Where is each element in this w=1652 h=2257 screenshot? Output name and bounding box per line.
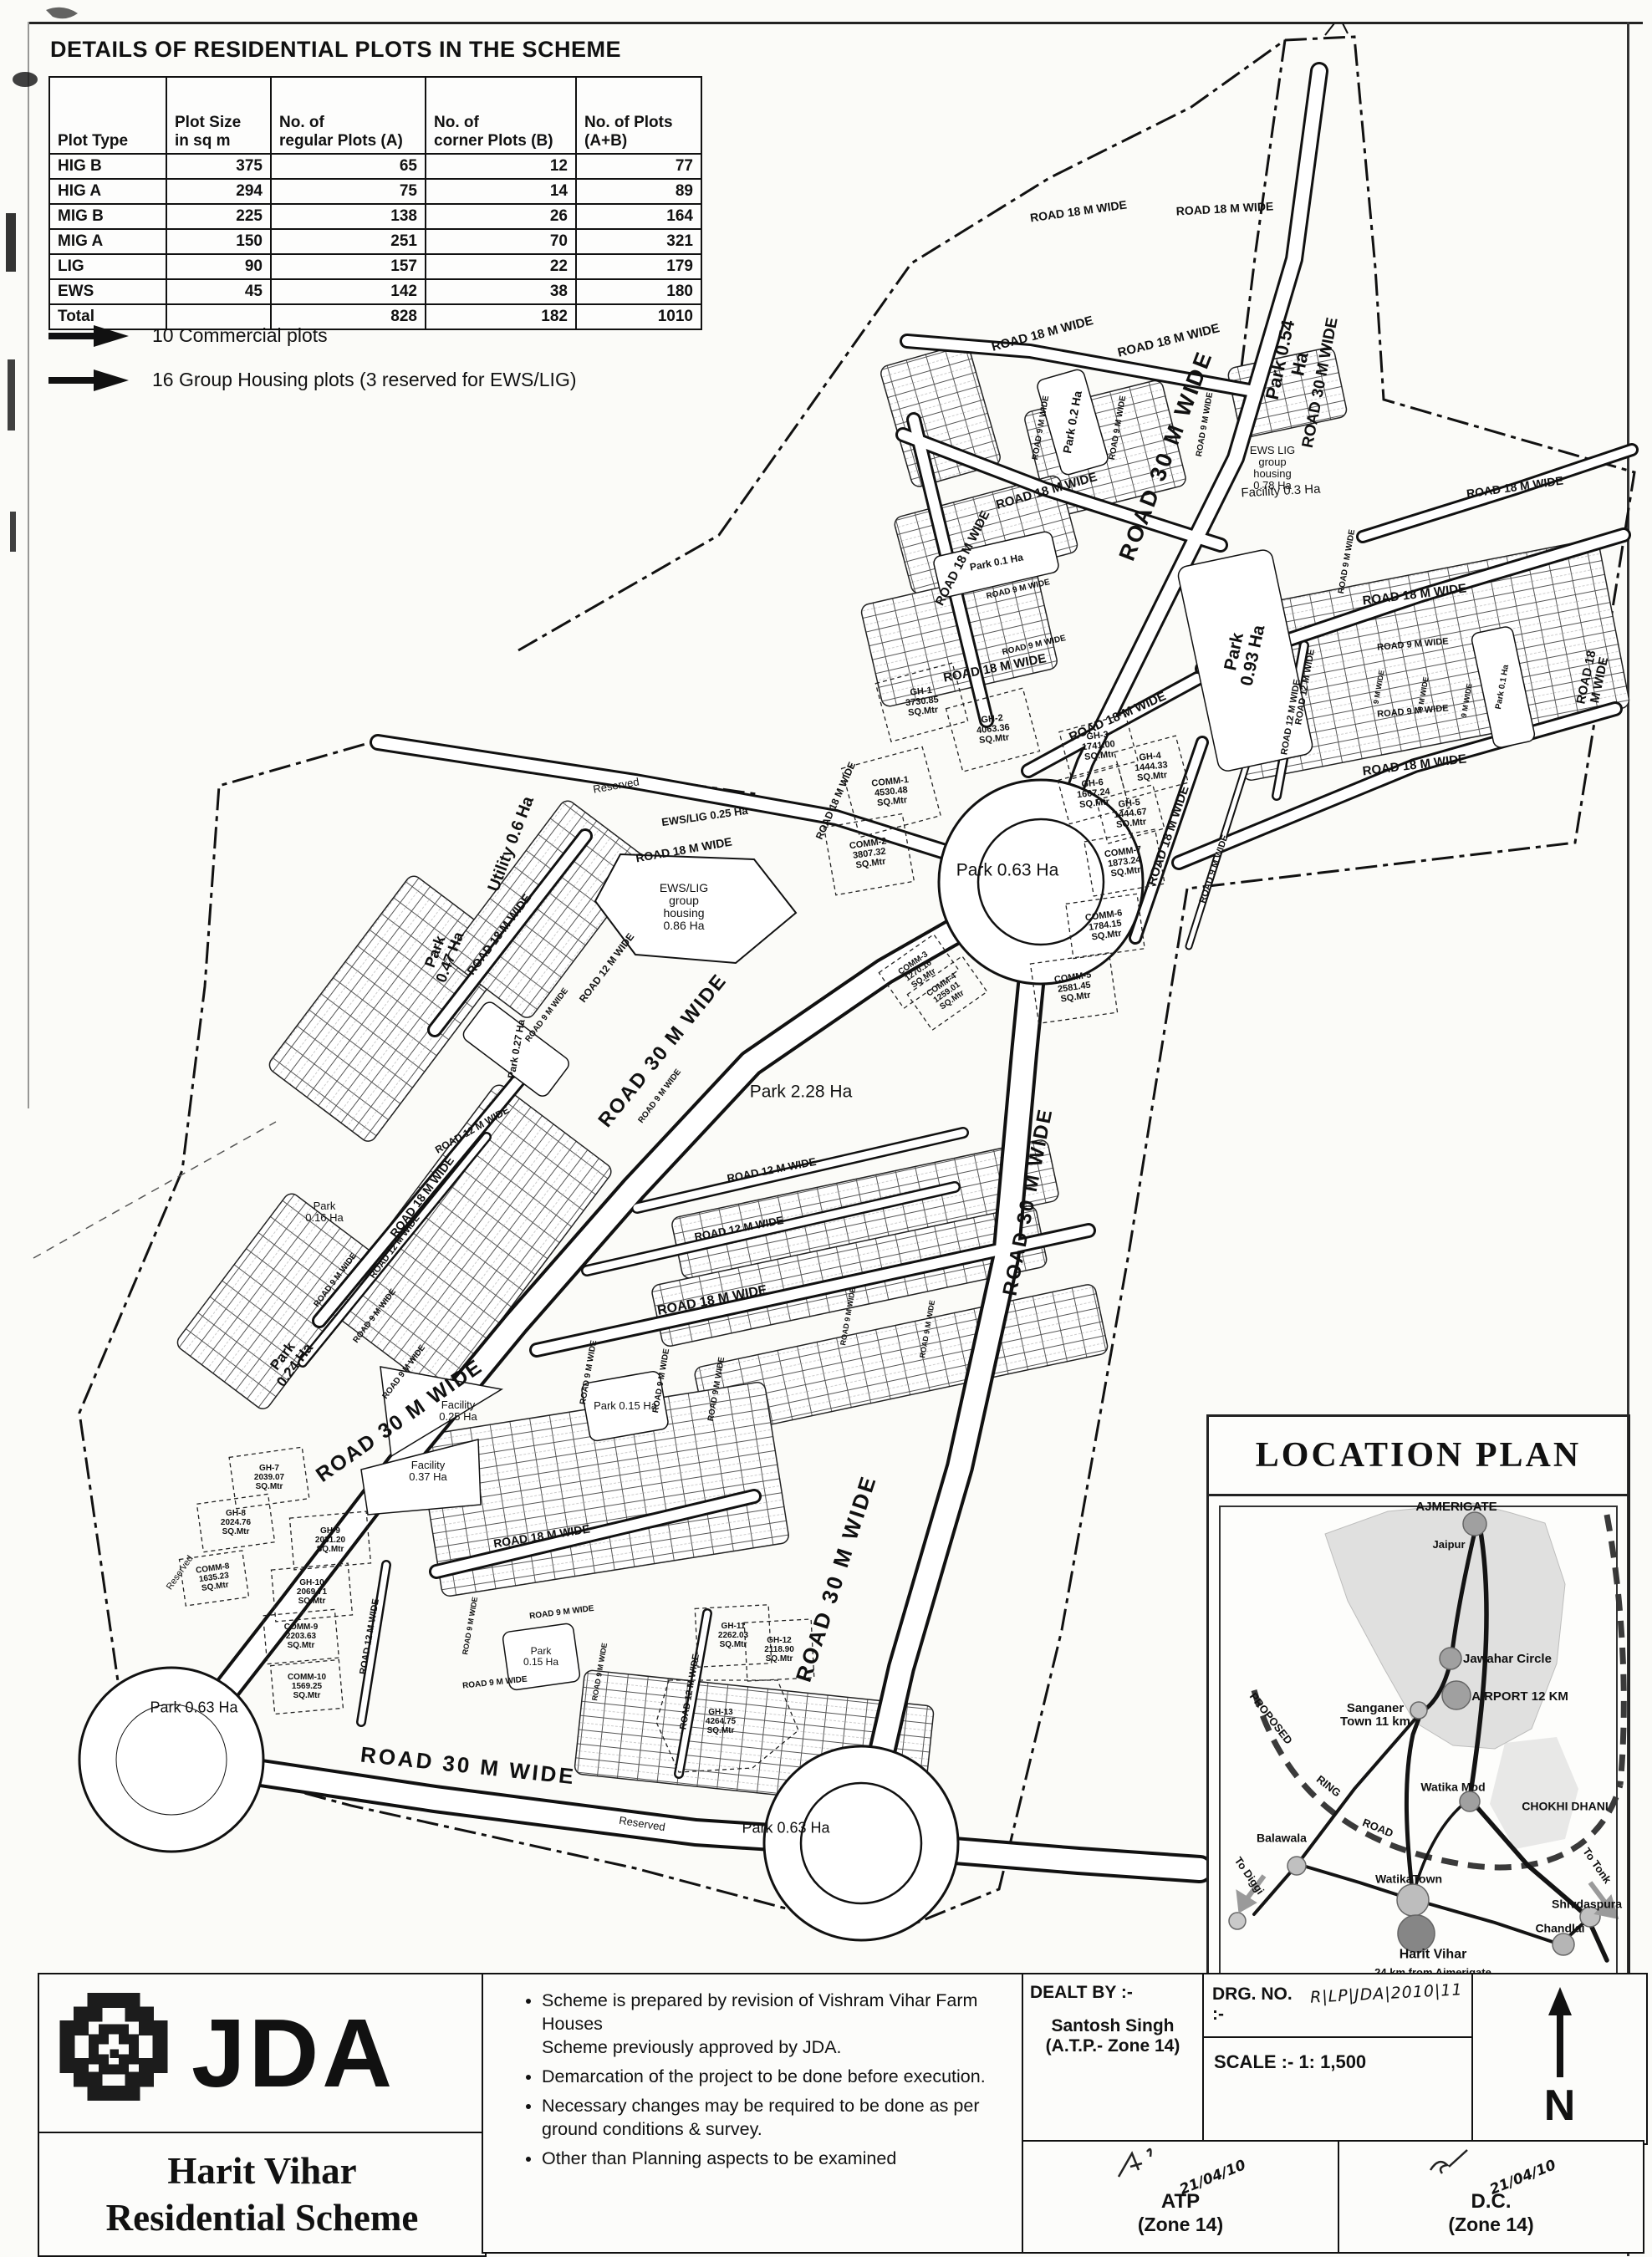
table-cell: 157	[271, 254, 426, 279]
dc-signature-cell: 21/04/10 D.C. (Zone 14)	[1338, 2140, 1644, 2254]
plan-label: ROAD 18 M WIDE	[465, 892, 533, 977]
plan-label: ROAD 18 M WIDE	[388, 1154, 456, 1240]
table-cell: 164	[576, 204, 701, 229]
location-plan-label: Sanganer Town 11 km	[1340, 1702, 1410, 1729]
plan-label: ROAD 9 M WIDE	[313, 1252, 359, 1310]
table-cell: 12	[426, 154, 576, 179]
location-plan-label: CHOKHI DHANI	[1522, 1800, 1608, 1812]
plan-label: GH-8 2024.76 SQ.Mtr	[221, 1510, 251, 1536]
plan-label: GH-10 2069.71 SQ.Mtr	[297, 1579, 327, 1606]
location-plan-label: Harit Vihar	[1400, 1947, 1467, 1961]
legend-notes: 10 Commercial plots16 Group Housing plot…	[48, 324, 577, 413]
location-plan-label: AJMERIGATE	[1415, 1500, 1496, 1514]
plan-label: ROAD 9 M WIDE	[707, 1357, 727, 1422]
drg-no-value: R|LP|JDA|2010|11	[1310, 1980, 1464, 2007]
table-cell: 75	[271, 179, 426, 204]
plan-label: ROAD 9 M WIDE	[652, 1348, 672, 1414]
table-cell: 22	[426, 254, 576, 279]
table-cell: 138	[271, 204, 426, 229]
plan-label: 9 M WIDE	[1461, 683, 1475, 718]
signature-scribble-icon	[1424, 2145, 1482, 2182]
table-cell: 142	[271, 279, 426, 304]
plan-label: ROAD 18 M WIDE	[1362, 752, 1467, 778]
plan-label: Park 0.47 Ha	[419, 925, 468, 986]
title-block-bullet: Demarcation of the project to be done be…	[542, 2066, 1013, 2089]
plan-label: ROAD 18 M WIDE	[1145, 784, 1192, 887]
plan-label: Reserved	[592, 776, 640, 795]
plan-label: ROAD 9 M WIDE	[919, 1300, 937, 1359]
plan-label: ROAD 30 M WIDE	[359, 1743, 577, 1789]
page-title: DETAILS OF RESIDENTIAL PLOTS IN THE SCHE…	[50, 37, 702, 63]
plan-label: ROAD 18 M WIDE	[1362, 582, 1467, 608]
dealt-by-role: (A.T.P.- Zone 14)	[1030, 2036, 1196, 2056]
dealt-by-label: DEALT BY :-	[1030, 1983, 1196, 2003]
plan-label: COMM-10 1569.25 SQ.Mtr	[288, 1674, 326, 1700]
plan-label: GH-9 2031.20 SQ.Mtr	[315, 1527, 345, 1554]
plan-label: ROAD 12 M WIDE	[359, 1598, 382, 1675]
table-cell: 90	[166, 254, 271, 279]
plan-label: ROAD 18 M WIDE	[635, 835, 733, 864]
location-plan-label: AIRPORT 12 KM	[1471, 1690, 1568, 1704]
plan-label: Park 0.15 Ha	[523, 1646, 558, 1668]
plan-label: ROAD 9 M WIDE	[352, 1288, 398, 1346]
table-cell: 375	[166, 154, 271, 179]
plan-label: GH-1 3730.85 SQ.Mtr	[904, 685, 940, 719]
plan-label: ROAD 18 M WIDE	[942, 652, 1048, 685]
plan-label: Park 0.15 Ha	[594, 1400, 657, 1412]
table-row: HIG A294751489	[49, 179, 701, 204]
plan-label: COMM-7 1873.24 SQ.Mtr	[1104, 845, 1145, 879]
plan-label: ROAD 30 M WIDE	[1000, 1107, 1058, 1298]
plan-label: GH-6 1607.24 SQ.Mtr	[1075, 777, 1111, 811]
table-cell: 150	[166, 229, 271, 254]
dc-zone: (Zone 14)	[1339, 2214, 1643, 2236]
jda-logo-icon	[51, 1990, 176, 2116]
drg-no-cell: DRG. NO. :- R|LP|JDA|2010|11	[1202, 1973, 1473, 2038]
plan-label: Park 0.63 Ha	[150, 1699, 237, 1715]
plan-label: ROAD 9 M WIDE	[579, 1340, 599, 1405]
plan-label: GH-2 4063.36 SQ.Mtr	[975, 713, 1011, 746]
title-block-bullet: Other than Planning aspects to be examin…	[542, 2147, 1013, 2171]
table-cell: 26	[426, 204, 576, 229]
plan-label: ROAD 9 M WIDE	[839, 1287, 858, 1347]
dealt-by-cell: DEALT BY :- Santosh Singh (A.T.P.- Zone …	[1022, 1973, 1204, 2142]
plan-label: ROAD 18 M WIDE	[995, 471, 1099, 512]
notes-cell: Scheme is prepared by revision of Vishra…	[482, 1973, 1023, 2254]
plan-label: ROAD 18 M WIDE	[1574, 647, 1613, 710]
location-plan-label: Balawala	[1257, 1832, 1307, 1844]
plot-details-table: Plot TypePlot Size in sq mNo. of regular…	[48, 76, 702, 330]
legend-note: 10 Commercial plots	[48, 324, 577, 347]
location-plan-label: WatikaTown	[1375, 1872, 1442, 1885]
plan-label: 9 M WIDE	[1373, 670, 1387, 705]
north-label: N	[1544, 2081, 1576, 2131]
plan-label: Reserved	[166, 1554, 196, 1592]
table-row: HIG B375651277	[49, 154, 701, 179]
plan-label: COMM-8 1635.23 SQ.Mtr	[196, 1562, 233, 1594]
plan-label: Park 2.28 Ha	[750, 1083, 853, 1103]
plan-label: GH-3 1741.00 SQ.Mtr	[1080, 730, 1116, 763]
scheme-name-line1: Harit Vihar	[167, 2147, 356, 2194]
legend-note-text: 10 Commercial plots	[152, 324, 328, 347]
table-cell: 251	[271, 229, 426, 254]
plan-label: ROAD 9 M WIDE	[462, 1676, 528, 1692]
dealt-by-name: Santosh Singh	[1030, 2016, 1196, 2036]
table-cell: MIG A	[49, 229, 166, 254]
plan-label: COMM-5 2581.45 SQ.Mtr	[1053, 971, 1094, 1005]
scheme-name-cell: Harit Vihar Residential Scheme	[38, 2132, 487, 2257]
plan-label: ROAD 12 M WIDE	[679, 1653, 702, 1730]
location-plan-label: Shivdaspura	[1552, 1898, 1622, 1910]
north-arrow-icon	[1535, 1987, 1585, 2079]
signature-scribble-icon	[1114, 2145, 1172, 2182]
table-cell: 225	[166, 204, 271, 229]
plan-label: Park 0.16 Ha	[305, 1200, 344, 1224]
plan-label: GH-4 1444.33 SQ.Mtr	[1133, 751, 1169, 784]
table-cell: 89	[576, 179, 701, 204]
plan-label: ROAD 18 M WIDE	[991, 314, 1095, 354]
location-plan-label: To Diggi	[1232, 1855, 1267, 1897]
drg-no-label: DRG. NO. :-	[1212, 1984, 1302, 2025]
table-row: MIG A15025170321	[49, 229, 701, 254]
plan-label: Park 0.27 Ha	[506, 1019, 527, 1080]
plan-label: COMM-1 4530.48 SQ.Mtr	[871, 776, 911, 809]
plan-label: Facility 0.25 Ha	[439, 1399, 477, 1423]
plan-label: Park 0.93 Ha	[1219, 619, 1269, 687]
location-plan-label: PROPOSED	[1247, 1691, 1294, 1747]
table-cell: LIG	[49, 254, 166, 279]
plan-label: ROAD 18 M WIDE	[814, 761, 859, 842]
plan-label: ROAD 9 M WIDE	[529, 1605, 595, 1622]
table-row: EWS4514238180	[49, 279, 701, 304]
plan-label: Park 0.63 Ha	[956, 862, 1059, 881]
table-column-header: No. of regular Plots (A)	[271, 77, 426, 154]
table-column-header: Plot Size in sq m	[166, 77, 271, 154]
plan-label: ROAD 9 M WIDE	[1338, 529, 1358, 594]
plan-label: ROAD 9 M WIDE	[1109, 395, 1129, 461]
plan-label: GH-7 2039.07 SQ.Mtr	[254, 1465, 284, 1491]
scheme-name-line2: Residential Scheme	[106, 2194, 419, 2241]
plan-label: Reserved	[618, 1815, 665, 1834]
location-plan-label: ROAD	[1361, 1816, 1395, 1839]
plan-label: Park 0.1 Ha	[1495, 665, 1512, 711]
location-plan-label: Chandlai	[1535, 1922, 1584, 1934]
table-cell: 294	[166, 179, 271, 204]
arrow-icon	[48, 369, 129, 391]
location-plan-label: Jaipur	[1432, 1539, 1465, 1551]
table-cell: 14	[426, 179, 576, 204]
table-cell: 321	[576, 229, 701, 254]
table-cell: 70	[426, 229, 576, 254]
location-plan-label: Jawahar Circle	[1463, 1653, 1552, 1666]
north-cell: N	[1471, 1973, 1648, 2145]
title-block-bullet: Necessary changes may be required to be …	[542, 2095, 1013, 2142]
scale-label: SCALE :- 1: 1,500	[1214, 2051, 1366, 2072]
plan-label: EWS/LIG group housing 0.86 Ha	[660, 882, 708, 932]
table-cell: 45	[166, 279, 271, 304]
table-cell: 180	[576, 279, 701, 304]
plan-label: ROAD 30 M WIDE	[594, 970, 732, 1132]
table-cell: 77	[576, 154, 701, 179]
plan-label: GH-12 2118.90 SQ.Mtr	[764, 1637, 794, 1663]
plan-label: ROAD 12 M WIDE	[693, 1215, 784, 1243]
plan-label: ROAD 18 M WIDE	[1029, 198, 1128, 224]
plan-label: ROAD 9 M WIDE	[1377, 637, 1449, 653]
title-block-bullet: Scheme is prepared by revision of Vishra…	[542, 1990, 1013, 2060]
table-cell: 179	[576, 254, 701, 279]
legend-note: 16 Group Housing plots (3 reserved for E…	[48, 369, 577, 391]
plan-label: ROAD 9 M WIDE	[986, 578, 1051, 602]
plan-label: ROAD 18 M WIDE	[1175, 200, 1273, 217]
plan-label: ROAD 30 M WIDE	[792, 1472, 881, 1685]
plan-label: Park 0.24 Ha	[262, 1332, 316, 1390]
table-cell: HIG A	[49, 179, 166, 204]
agency-cell: JDA	[38, 1973, 483, 2133]
arrow-icon	[48, 325, 129, 347]
plan-label: ROAD 9 M WIDE	[1377, 704, 1449, 720]
table-column-header: Plot Type	[49, 77, 166, 154]
plan-label: ROAD 12 M WIDE	[578, 931, 637, 1005]
plan-label: EWS/LIG 0.25 Ha	[661, 805, 749, 828]
agency-name: JDA	[191, 2005, 395, 2102]
plan-label: Park 0.1 Ha	[969, 552, 1024, 573]
atp-signature-cell: 21/04/10 ATP (Zone 14)	[1022, 2140, 1339, 2254]
table-row: MIG B22513826164	[49, 204, 701, 229]
plan-label: COMM-9 2203.63 SQ.Mtr	[284, 1623, 319, 1650]
plan-label: Park 0.2 Ha	[1061, 390, 1084, 455]
table-cell: 1010	[576, 304, 701, 329]
location-plan-label: Watika Mod	[1420, 1781, 1485, 1793]
plan-label: Park 0.63 Ha	[742, 1820, 829, 1836]
plan-label: COMM-6 1784.15 SQ.Mtr	[1084, 909, 1125, 943]
plan-label: GH-5 1444.67 SQ.Mtr	[1112, 797, 1148, 831]
plan-label: ROAD 9 M WIDE	[1032, 395, 1052, 461]
table-cell: MIG B	[49, 204, 166, 229]
table-cell: 65	[271, 154, 426, 179]
scale-cell: SCALE :- 1: 1,500	[1202, 2036, 1473, 2142]
plan-label: COMM-2 3807.32 SQ.Mtr	[849, 837, 890, 871]
atp-zone: (Zone 14)	[1023, 2214, 1338, 2236]
table-cell: HIG B	[49, 154, 166, 179]
plan-label: ROAD 18 M WIDE	[1466, 474, 1564, 500]
table-column-header: No. of Plots (A+B)	[576, 77, 701, 154]
plot-details-panel: DETAILS OF RESIDENTIAL PLOTS IN THE SCHE…	[48, 37, 702, 330]
plan-label: ROAD 12 M WIDE	[726, 1156, 817, 1185]
plan-label: ROAD 9 M WIDE	[1198, 834, 1231, 905]
plan-label: ROAD 18 M WIDE	[492, 1522, 591, 1550]
plan-label: ROAD 18 M WIDE	[656, 1283, 768, 1318]
plan-label: GH-13 4264.75 SQ.Mtr	[706, 1709, 736, 1735]
plan-label: ROAD 9 M WIDE	[461, 1597, 480, 1656]
plan-label: ROAD 9 M WIDE	[524, 987, 570, 1045]
atp-label: ATP	[1023, 2190, 1338, 2214]
plan-label: GH-11 2262.03 SQ.Mtr	[718, 1623, 748, 1649]
location-plan-label: To Tonk	[1580, 1846, 1613, 1886]
location-plan-label: RING	[1314, 1773, 1343, 1799]
plan-label: Facility 0.37 Ha	[409, 1460, 447, 1483]
table-cell: EWS	[49, 279, 166, 304]
legend-note-text: 16 Group Housing plots (3 reserved for E…	[152, 369, 577, 391]
scanned-scheme-sheet: { "table": { "title": "DETAILS OF RESIDE…	[0, 0, 1652, 2256]
plan-label: ROAD 9 M WIDE	[591, 1643, 609, 1702]
plan-label: EWS LIG group housing 0.78 Ha	[1250, 445, 1295, 492]
plan-label: ROAD 12 M WIDE	[433, 1104, 511, 1155]
table-row: LIG9015722179	[49, 254, 701, 279]
plan-label: Utility 0.6 Ha	[485, 794, 538, 894]
table-column-header: No. of corner Plots (B)	[426, 77, 576, 154]
table-cell: 38	[426, 279, 576, 304]
